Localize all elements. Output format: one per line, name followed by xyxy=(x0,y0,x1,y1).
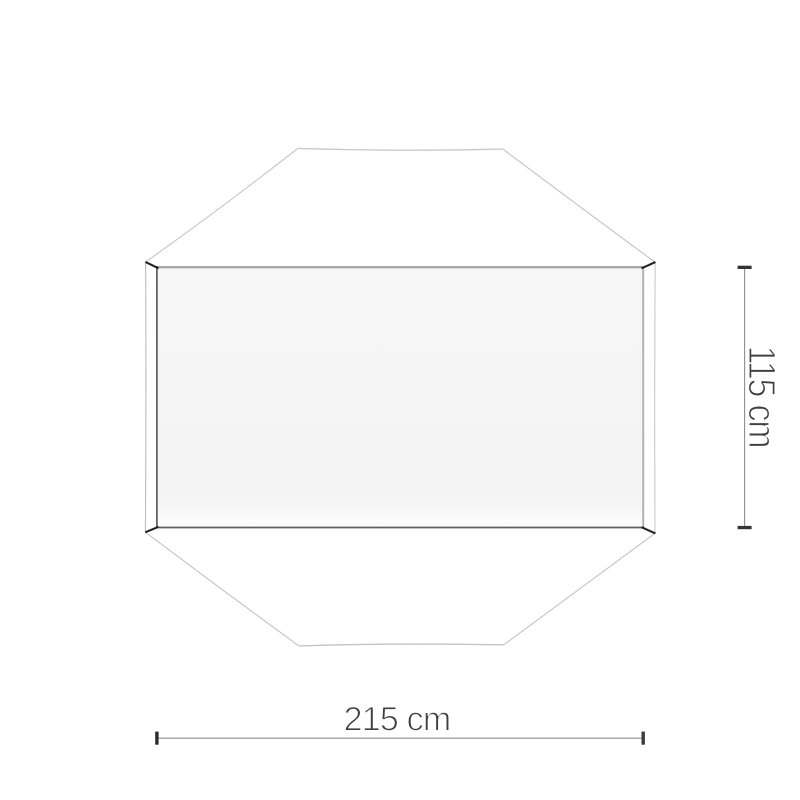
svg-text:215 cm: 215 cm xyxy=(344,701,451,739)
svg-text:115 cm: 115 cm xyxy=(740,346,783,448)
